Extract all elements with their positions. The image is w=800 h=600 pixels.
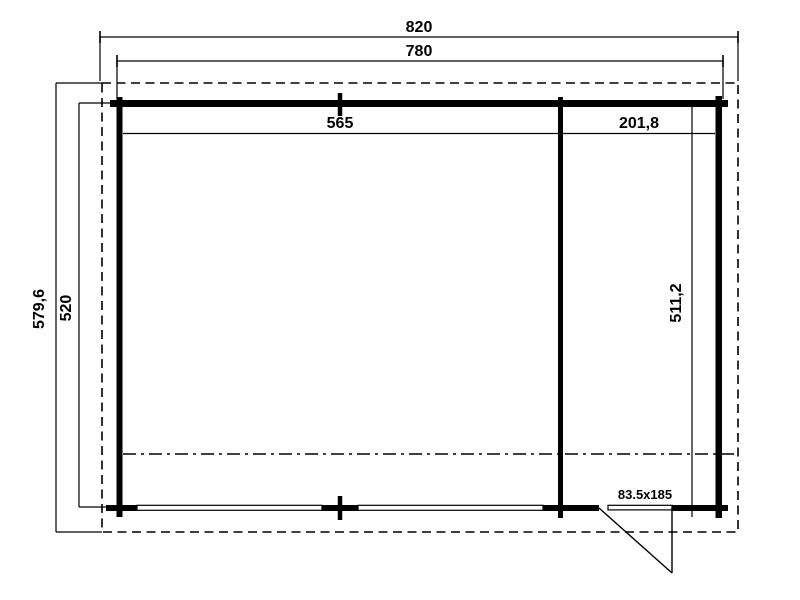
- dim-wall-depth: 520: [58, 103, 116, 507]
- roof-outline-rect: [102, 83, 738, 532]
- dim-780-label: 780: [406, 43, 433, 60]
- wall-bottom-seg-4: [672, 505, 728, 511]
- dim-520-label: 520: [58, 295, 75, 322]
- dim-820-label: 820: [406, 19, 433, 36]
- walls: [106, 93, 728, 520]
- door: 83.5x185: [599, 487, 672, 573]
- dim-room-left: 565: [123, 115, 558, 134]
- wall-right: [716, 96, 723, 518]
- dim-wall-width: 780: [117, 43, 723, 99]
- dim-511-label: 511,2: [668, 283, 685, 322]
- window-left: [137, 505, 322, 510]
- dim-579-label: 579,6: [31, 289, 48, 329]
- wall-partition: [558, 97, 563, 518]
- door-size-label: 83.5x185: [618, 487, 672, 502]
- floor-plan-drawing: 83.5x185 820 780 565 201,8: [0, 0, 800, 600]
- roof-outline: [102, 83, 738, 532]
- wall-top: [110, 100, 728, 107]
- dim-interior-depth: 511,2: [668, 107, 692, 517]
- window-right: [358, 505, 543, 510]
- dim-201-label: 201,8: [619, 115, 659, 132]
- wall-bottom-seg-1: [106, 505, 137, 511]
- wall-bottom-seg-3: [543, 505, 599, 511]
- wall-left: [117, 97, 123, 517]
- floor-plan-canvas: 83.5x185 820 780 565 201,8: [0, 0, 800, 600]
- dim-565-label: 565: [327, 115, 354, 132]
- door-leaf: [608, 505, 672, 510]
- door-swing-diagonal: [599, 508, 672, 573]
